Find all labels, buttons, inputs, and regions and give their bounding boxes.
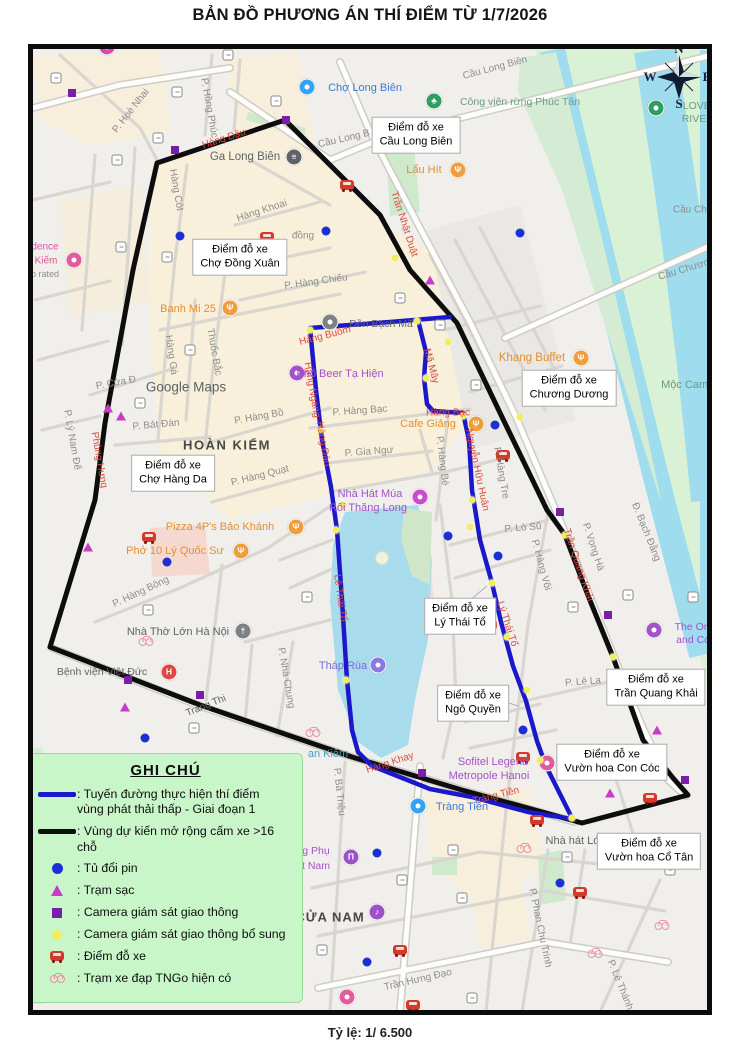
traffic-camera-marker (282, 116, 290, 124)
parking-label-box: Điểm đỗ xeVườn hoa Cổ Tân (597, 833, 701, 870)
poi-icon: ♣ (426, 93, 443, 110)
compass-n: N (674, 44, 683, 57)
battery-swap-marker (516, 229, 525, 238)
parking-label-box: Điểm đỗ xeLý Thái Tổ (424, 598, 496, 635)
map-label: Bệnh viện Việt Đức (57, 666, 147, 678)
legend-item-label: : Điểm đỗ xe (77, 949, 146, 964)
traffic-camera-marker (681, 776, 689, 784)
legend-item-label: : Vùng dự kiến mở rộng cấm xe >16 chỗ (77, 824, 294, 855)
extra-camera-marker (517, 414, 524, 421)
map-label: The One (675, 621, 712, 633)
compass-w: W (644, 69, 657, 85)
poi-icon: ♪ (369, 904, 386, 921)
parking-label-box: Điểm đỗ xeNgô Quyền (437, 685, 509, 722)
poi-icon (412, 489, 429, 506)
battery-swap-marker (163, 558, 172, 567)
map-label: 'LOVE R (681, 100, 712, 112)
transit-stop-icon (317, 945, 328, 956)
poi-icon: Ψ (233, 543, 250, 560)
transit-stop-icon (112, 155, 123, 166)
charging-station-marker (120, 703, 130, 712)
map-label: Hàng Bạc (426, 408, 470, 419)
parking-box-line: Chợ Hàng Da (139, 473, 207, 487)
transit-stop-icon (172, 87, 183, 98)
parking-box-line: Điểm đỗ xe (139, 459, 207, 473)
charging-station-marker (83, 543, 93, 552)
traffic-camera-marker (556, 508, 564, 516)
legend-tri-icon (37, 883, 77, 898)
map-label: Metropole Hanoi (449, 770, 530, 782)
extra-camera-marker (469, 497, 476, 504)
map-world: N E S W GHI CHÚ : Tuyến đường thực hiện … (28, 44, 712, 1015)
parking-box-line: Điểm đỗ xe (432, 602, 488, 616)
poi-icon (646, 622, 663, 639)
transit-stop-icon (271, 96, 282, 107)
compass-star-icon (657, 55, 701, 99)
transit-stop-icon (471, 380, 482, 391)
legend-item: : Tủ đổi pin (37, 861, 294, 876)
extra-camera-marker (414, 318, 421, 325)
parking-point-marker (406, 1000, 420, 1010)
compass-s: S (675, 96, 682, 112)
transit-stop-icon (185, 345, 196, 356)
legend-item: : Camera giám sát giao thông (37, 905, 294, 920)
map-label: HOÀN KIẾM (183, 438, 271, 453)
map-label: Nhà hát Lớ (546, 835, 601, 847)
transit-stop-icon (562, 852, 573, 863)
legend-swatch (51, 885, 63, 896)
map-label: an Kiếm (308, 748, 348, 760)
traffic-camera-marker (604, 611, 612, 619)
traffic-camera-marker (171, 146, 179, 154)
map-label: Chợ Long Biên (328, 82, 402, 94)
traffic-camera-marker (418, 769, 426, 777)
poi-icon: ≡ (286, 149, 303, 166)
parking-box-line: Cầu Long Biên (380, 135, 453, 149)
extra-camera-marker (392, 255, 399, 262)
map-label: t Nam (302, 860, 330, 872)
battery-swap-marker (494, 552, 503, 561)
legend-item: : Trạm xe đạp TNGo hiện có (37, 971, 294, 986)
parking-label-box: Điểm đỗ xeVườn hoa Con Cóc (556, 744, 667, 781)
transit-stop-icon (116, 242, 127, 253)
legend-item-label: : Tủ đổi pin (77, 861, 138, 876)
extra-camera-marker (537, 757, 544, 764)
battery-swap-marker (444, 532, 453, 541)
transit-stop-icon (302, 592, 313, 603)
map-label: Lẩu Hít (406, 164, 441, 176)
legend-swatch (38, 829, 76, 834)
parking-point-marker (573, 887, 587, 897)
transit-stop-icon (223, 50, 234, 61)
traffic-camera-marker (68, 89, 76, 97)
map-label: Mộc Campin (661, 379, 712, 391)
poi-icon: Ψ (288, 519, 305, 536)
transit-stop-icon (395, 293, 406, 304)
battery-swap-marker (373, 849, 382, 858)
legend-item: : Camera giám sát giao thông bổ sung (37, 927, 294, 942)
battery-swap-marker (363, 958, 372, 967)
extra-camera-marker (524, 687, 531, 694)
legend-item: : Điểm đỗ xe (37, 949, 294, 964)
parking-box-line: Điểm đỗ xe (564, 748, 659, 762)
legend-swatch (50, 973, 65, 983)
transit-stop-icon (397, 875, 408, 886)
map-label: Nhà Hát Múa (338, 488, 403, 500)
map-label: đồng (292, 231, 314, 242)
poi-icon: H (161, 664, 178, 681)
parking-box-line: Điểm đỗ xe (445, 689, 501, 703)
parking-box-line: Vườn hoa Con Cóc (564, 762, 659, 776)
legend-title: GHI CHÚ (37, 762, 294, 779)
legend-bike-icon (37, 971, 77, 986)
transit-stop-icon (51, 73, 62, 84)
traffic-camera-marker (196, 691, 204, 699)
map-label: Tháp Rùa (319, 660, 367, 672)
map-label: Tràng Tiền (436, 801, 488, 813)
charging-station-marker (605, 789, 615, 798)
extra-camera-marker (610, 654, 617, 661)
poi-icon (66, 252, 83, 269)
poi-icon: Ψ (450, 162, 467, 179)
transit-stop-icon (448, 845, 459, 856)
parking-box-line: Chợ Đồng Xuân (200, 257, 279, 271)
legend-sq-icon (37, 905, 77, 920)
map-label: p rated (31, 269, 59, 279)
battery-swap-marker (556, 879, 565, 888)
legend-item-label: : Trạm sạc (77, 883, 134, 898)
parking-box-line: Vườn hoa Cổ Tân (605, 851, 693, 865)
map-label: Khang Buffet (499, 352, 565, 364)
parking-label-box: Điểm đỗ xeChợ Đồng Xuân (192, 239, 287, 276)
legend-item: : Vùng dự kiến mở rộng cấm xe >16 chỗ (37, 824, 294, 855)
transit-stop-icon (162, 252, 173, 263)
poi-icon: Ψ (573, 350, 590, 367)
tngo-bike-marker (306, 727, 321, 737)
parking-point-marker (142, 532, 156, 542)
parking-box-line: Điểm đỗ xe (530, 374, 609, 388)
extra-camera-marker (489, 580, 496, 587)
parking-label-box: Điểm đỗ xeTrần Quang Khải (606, 669, 705, 706)
transit-stop-icon (467, 993, 478, 1004)
transit-stop-icon (153, 133, 164, 144)
map-label: RIVER' C (682, 113, 712, 125)
charging-station-marker (116, 412, 126, 421)
legend-item-label: : Camera giám sát giao thông bổ sung (77, 927, 286, 942)
map-label: Sofitel Legend (458, 756, 528, 768)
extra-camera-marker (343, 677, 350, 684)
map-scale: Tỷ lệ: 1/ 6.500 (0, 1025, 740, 1040)
battery-swap-marker (322, 227, 331, 236)
legend-swatch (52, 930, 62, 940)
legend-item: : Tuyến đường thực hiện thí điểmvùng phá… (37, 787, 294, 818)
legend-item: : Trạm sạc (37, 883, 294, 898)
compass-e: E (703, 69, 712, 85)
parking-box-line: Điểm đỗ xe (380, 121, 453, 135)
transit-stop-icon (688, 592, 699, 603)
map-label: Phở 10 Lý Quốc Sư (126, 545, 224, 557)
charging-station-marker (652, 726, 662, 735)
map-label: and Con (676, 634, 712, 646)
battery-swap-marker (141, 734, 150, 743)
map-label: dence (31, 242, 58, 253)
poi-icon (648, 100, 665, 117)
legend-car-icon (37, 949, 77, 964)
transit-stop-icon (135, 398, 146, 409)
map-label: Cafe Giảng (400, 418, 456, 430)
parking-point-marker (643, 793, 657, 803)
poi-icon: † (235, 623, 252, 640)
page: { "title": "BẢN ĐỒ PHƯƠNG ÁN THÍ ĐIỂM TỪ… (0, 0, 740, 1054)
legend-dot-yellow-icon (37, 927, 77, 942)
parking-point-marker (393, 945, 407, 955)
legend: GHI CHÚ : Tuyến đường thực hiện thí điểm… (28, 753, 303, 1003)
page-title: BẢN ĐỒ PHƯƠNG ÁN THÍ ĐIỂM TỪ 1/7/2026 (0, 6, 740, 25)
legend-item-label: : Camera giám sát giao thông (77, 905, 238, 920)
legend-swatch (50, 951, 64, 961)
poi-icon: Ψ (222, 300, 239, 317)
legend-item-label: : Tuyến đường thực hiện thí điểmvùng phá… (77, 787, 259, 818)
extra-camera-marker (467, 524, 474, 531)
legend-item-label: : Trạm xe đạp TNGo hiện có (77, 971, 231, 986)
parking-box-line: Trần Quang Khải (614, 687, 697, 701)
poi-icon (299, 79, 316, 96)
parking-point-marker (340, 180, 354, 190)
parking-box-line: Lý Thái Tổ (432, 616, 488, 630)
map-label: Rối Thăng Long (329, 502, 407, 514)
parking-box-line: Điểm đỗ xe (614, 673, 697, 687)
extra-camera-marker (445, 339, 452, 346)
map-label: Google Maps (146, 380, 226, 395)
parking-label-box: Điểm đỗ xeChương Dương (522, 370, 617, 407)
poi-icon: Π (343, 849, 360, 866)
parking-label-box: Điểm đỗ xeChợ Hàng Da (131, 455, 215, 492)
transit-stop-icon (435, 320, 446, 331)
tngo-bike-marker (655, 920, 670, 930)
battery-swap-marker (519, 726, 528, 735)
poi-icon (410, 798, 427, 815)
map-label: Kiếm (35, 256, 58, 267)
map-label: Công viên rừng Phúc Tân (460, 96, 580, 108)
extra-camera-marker (569, 815, 576, 822)
transit-stop-icon (189, 723, 200, 734)
map-label: Ga Long Biên (210, 151, 280, 163)
transit-stop-icon (143, 605, 154, 616)
legend-items: : Tuyến đường thực hiện thí điểmvùng phá… (37, 787, 294, 986)
parking-box-line: Chương Dương (530, 388, 609, 402)
poi-icon (370, 657, 387, 674)
map-label: Pizza 4P's Bảo Khánh (166, 521, 275, 533)
legend-dot-blue-icon (37, 861, 77, 876)
extra-camera-marker (333, 527, 340, 534)
tngo-bike-marker (517, 843, 532, 853)
legend-line-black-icon (37, 824, 77, 839)
legend-swatch (52, 908, 62, 918)
legend-swatch (38, 792, 76, 797)
map-label: Cầu Chương (673, 205, 712, 216)
map-label: g Phụ (302, 845, 329, 857)
map-label: CỬA NAM (295, 910, 364, 925)
charging-station-marker (103, 404, 113, 413)
parking-label-box: Điểm đỗ xeCầu Long Biên (372, 117, 461, 154)
parking-point-marker (530, 815, 544, 825)
transit-stop-icon (457, 893, 468, 904)
battery-swap-marker (491, 421, 500, 430)
poi-icon (339, 989, 356, 1006)
map-label: Banh Mi 25 (160, 303, 216, 315)
transit-stop-icon (568, 602, 579, 613)
legend-line-blue-icon (37, 787, 77, 802)
battery-swap-marker (176, 232, 185, 241)
parking-box-line: Điểm đỗ xe (605, 837, 693, 851)
map-canvas: N E S W GHI CHÚ : Tuyến đường thực hiện … (28, 44, 712, 1015)
parking-box-line: Điểm đỗ xe (200, 243, 279, 257)
tngo-bike-marker (588, 948, 603, 958)
map-label: Nhà Thờ Lớn Hà Nội (127, 626, 229, 638)
charging-station-marker (425, 276, 435, 285)
legend-swatch (52, 863, 63, 874)
parking-box-line: Ngô Quyền (445, 703, 501, 717)
transit-stop-icon (623, 590, 634, 601)
map-label: Đền Bạch Mã (349, 318, 413, 330)
